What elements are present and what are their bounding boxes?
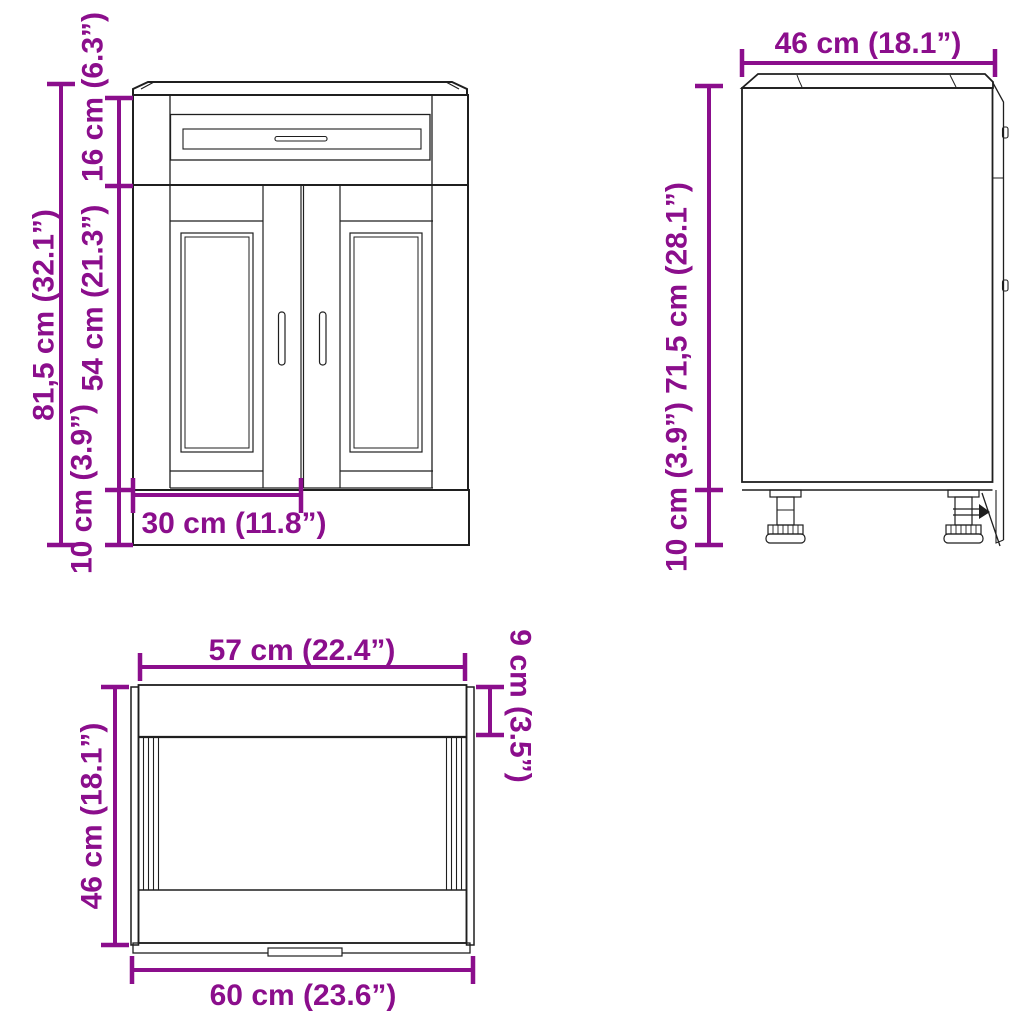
top-depth-label: 46 cm (18.1”)	[76, 723, 109, 910]
top-total-width-label: 60 cm (23.6”)	[210, 979, 397, 1012]
front-drawer-face	[171, 115, 431, 161]
front-left-door-panel	[181, 233, 253, 452]
front-total-height-label: 81,5 cm (32.1”)	[28, 209, 61, 421]
top-right-door-edge	[467, 687, 475, 945]
top-right-side-panel-lines	[447, 737, 462, 890]
front-countertop	[133, 82, 467, 95]
top-front-depth-label: 9 cm (3.5”)	[504, 629, 537, 782]
front-drawer-handle	[275, 137, 327, 142]
dimension-diagram: 81,5 cm (32.1”) 16 cm (6.3”) 54 cm (21.3…	[0, 0, 1024, 1024]
top-body	[139, 685, 467, 943]
diagram-svg: 81,5 cm (32.1”) 16 cm (6.3”) 54 cm (21.3…	[0, 0, 1024, 1024]
front-left-door-handle	[279, 312, 286, 365]
front-door-gap	[301, 186, 304, 488]
side-body	[742, 88, 993, 482]
side-left-foot	[766, 490, 805, 543]
side-view: 46 cm (18.1”) 71,5 cm (28.1”) 10 cm (3.9…	[661, 27, 1009, 572]
side-foot-bracket	[953, 509, 979, 515]
top-inner-width-label: 57 cm (22.4”)	[209, 634, 396, 667]
front-plinth-height-label: 10 cm (3.9”)	[66, 404, 99, 574]
side-foot-bracket-arrow-icon	[979, 504, 990, 519]
side-plinth-board	[982, 493, 1000, 546]
top-view: 57 cm (22.4”) 9 cm (3.5”) 46 cm (18.1”) …	[76, 629, 537, 1012]
front-door-height-label: 54 cm (21.3”)	[77, 205, 110, 392]
front-left-door-panel-inner	[185, 237, 249, 448]
front-door-width-label: 30 cm (11.8”)	[141, 507, 326, 540]
side-depth-label: 46 cm (18.1”)	[775, 27, 962, 60]
top-back-notch	[268, 948, 342, 956]
front-right-door-handle	[320, 312, 327, 365]
front-drawer-height-label: 16 cm (6.3”)	[77, 12, 110, 182]
side-door-panel-bottom	[996, 490, 1004, 543]
side-door-panel	[993, 82, 1004, 540]
side-feet-height-label: 10 cm (3.9”)	[661, 402, 694, 572]
front-drawer-panel	[183, 129, 421, 149]
side-body-height-label: 71,5 cm (28.1”)	[661, 182, 694, 394]
front-right-door-panel	[350, 233, 422, 452]
front-view: 81,5 cm (32.1”) 16 cm (6.3”) 54 cm (21.3…	[28, 12, 470, 574]
front-right-door-panel-inner	[354, 237, 418, 448]
top-left-side-panel-lines	[144, 737, 159, 890]
top-left-door-edge	[131, 687, 139, 945]
